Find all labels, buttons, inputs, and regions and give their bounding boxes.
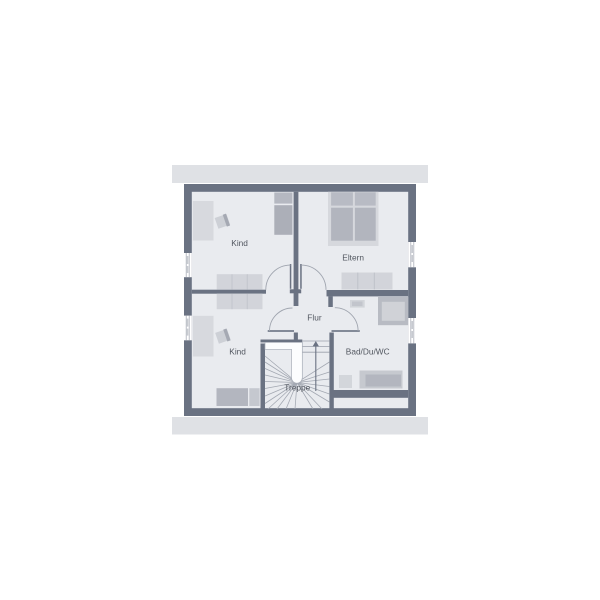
svg-text:Treppe: Treppe (284, 383, 310, 393)
svg-text:Flur: Flur (307, 312, 322, 322)
svg-text:Eltern: Eltern (342, 252, 364, 262)
svg-text:Kind: Kind (231, 238, 248, 248)
svg-text:Kind: Kind (229, 346, 246, 356)
svg-text:Bad/Du/WC: Bad/Du/WC (346, 346, 390, 356)
